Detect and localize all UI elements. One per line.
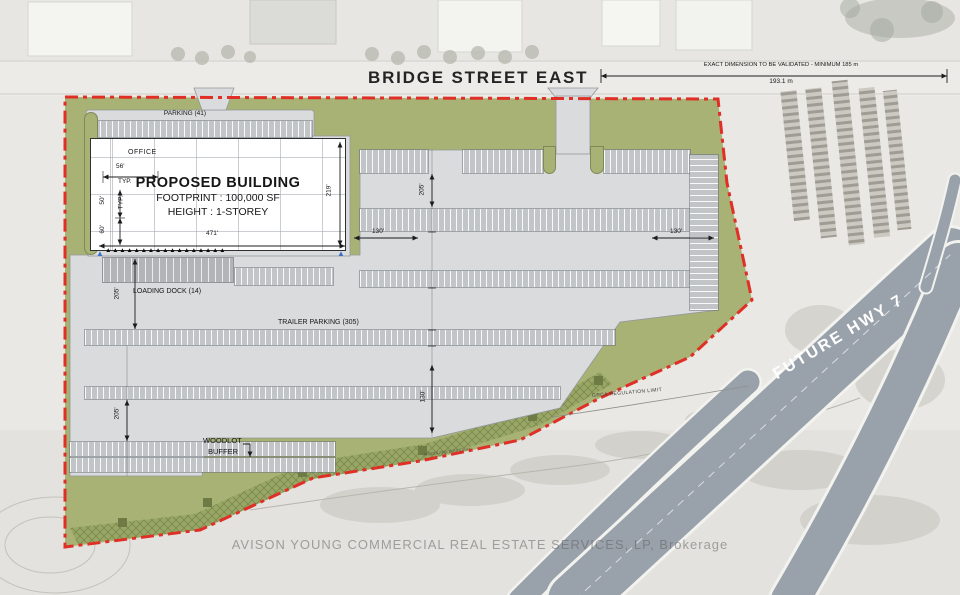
building-height: HEIGHT : 1-STOREY [118, 207, 318, 218]
trailer-row [360, 150, 428, 173]
street-label: BRIDGE STREET EAST [368, 69, 588, 87]
base-drawing [0, 0, 960, 595]
landscape-island [543, 146, 556, 174]
trailer-row [463, 150, 543, 173]
trailer-parking-label: TRAILER PARKING (305) [278, 319, 359, 326]
dim-130-west: 130' [372, 229, 384, 236]
dim-60: 60' [100, 225, 107, 233]
brokerage-watermark: AVISON YOUNG COMMERCIAL REAL ESTATE SERV… [0, 537, 960, 552]
trailer-row [604, 150, 690, 173]
loading-dock-apron [103, 258, 233, 282]
east-parking-strip [690, 155, 718, 310]
dim-130-east: 130' [670, 229, 682, 236]
dim-50-typ: TYP. [118, 196, 125, 210]
building-title: PROPOSED BUILDING [118, 176, 318, 191]
dim-205-mid: 205' [420, 183, 427, 195]
woodlot-buffer-label: WOODLOT [203, 437, 242, 445]
dim-471: 471' [206, 231, 218, 238]
trailer-row [360, 271, 690, 287]
parking-row [88, 121, 312, 137]
dimension-value: 193.1 m [620, 79, 942, 86]
office-label: OFFICE [128, 149, 157, 156]
landscape-island [590, 146, 604, 174]
building-footprint: FOOTPRINT : 100,000 SF [118, 193, 318, 204]
dim-130-mid: 130' [421, 390, 428, 402]
trailer-row [85, 330, 615, 345]
trailer-row [235, 268, 333, 285]
dim-50: 50' [100, 196, 107, 204]
trailer-row [360, 209, 690, 231]
ramp-arrow: ▲ [337, 249, 345, 258]
ramp-arrow: ▲ [96, 249, 104, 258]
parking-count-label: PARKING (41) [145, 111, 225, 118]
dock-door-markers: ▲▲▲▲▲▲▲▲▲▲▲▲▲▲▲▲▲ [105, 247, 226, 254]
loading-dock-label: LOADING DOCK (14) [133, 288, 201, 295]
dim-56-typ: TYP. [118, 179, 132, 186]
trailer-row [70, 458, 335, 472]
trailer-row [85, 387, 560, 399]
dim-56: 56' [116, 164, 124, 171]
woodlot-buffer-label2: BUFFER [208, 448, 238, 456]
dim-205-left-b: 205' [115, 407, 122, 419]
dim-219: 219' [327, 184, 334, 196]
site-plan-canvas: ▲▲▲▲▲▲▲▲▲▲▲▲▲▲▲▲▲ ▲ ▲ [0, 0, 960, 595]
dim-205-left-a: 205' [115, 287, 122, 299]
dimension-note: EXACT DIMENSION TO BE VALIDATED - MINIMU… [620, 62, 942, 68]
